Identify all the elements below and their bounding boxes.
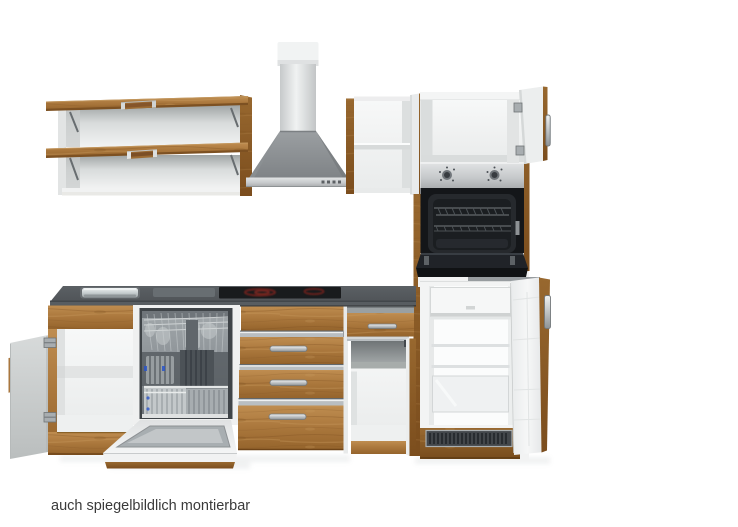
svg-text:auch spiegelbildlich montierba: auch spiegelbildlich montierbar [51,498,250,514]
